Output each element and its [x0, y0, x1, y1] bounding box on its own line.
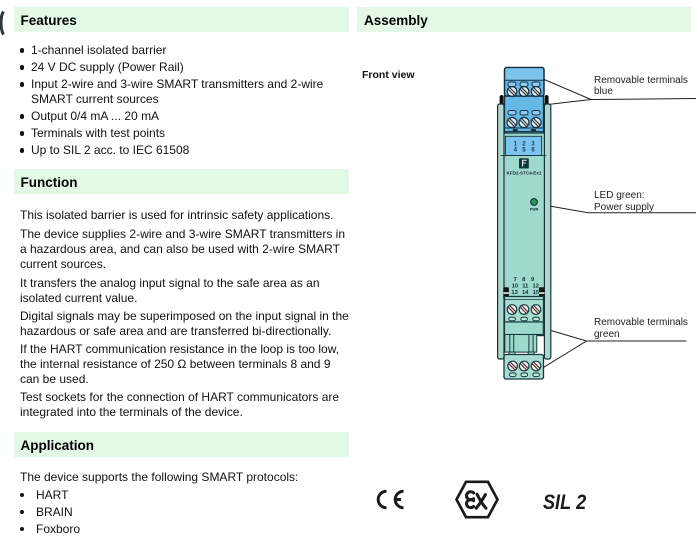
svg-text:14: 14 — [522, 290, 529, 296]
svg-text:KFD2-STC4-Ex1: KFD2-STC4-Ex1 — [507, 171, 542, 176]
svg-text:15: 15 — [533, 290, 540, 296]
svg-text:PWR: PWR — [530, 208, 539, 212]
svg-text:13: 13 — [511, 290, 518, 296]
svg-text:11: 11 — [522, 284, 529, 290]
svg-text:7: 7 — [514, 277, 517, 283]
svg-text:10: 10 — [512, 284, 518, 290]
svg-text:12: 12 — [532, 284, 538, 290]
